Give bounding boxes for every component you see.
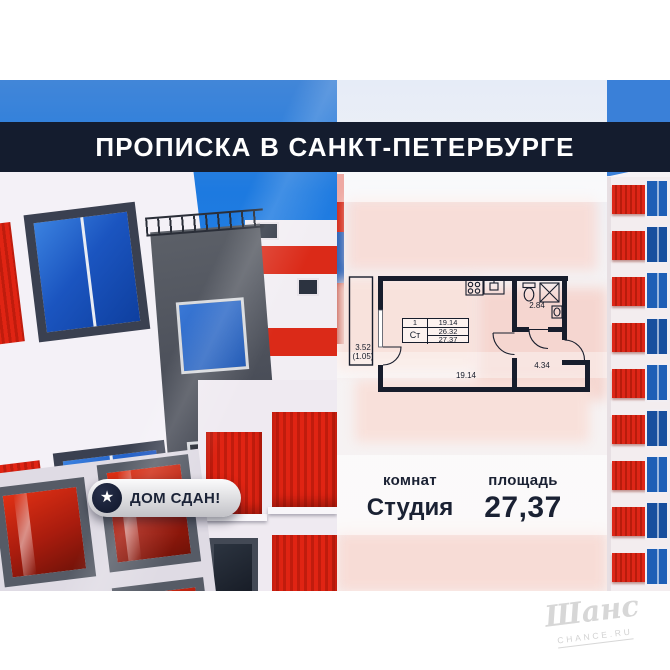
building-floor — [611, 452, 670, 498]
red-balcony — [612, 415, 646, 444]
star-icon — [100, 489, 114, 507]
watermark: Шанс CHANCE.RU — [531, 589, 656, 651]
window — [24, 202, 151, 343]
toilet-icon — [523, 283, 535, 301]
red-balcony — [272, 535, 337, 591]
watermark-brand: Шанс — [531, 589, 654, 633]
red-balcony — [272, 412, 337, 507]
window — [645, 317, 669, 356]
badge-circle — [92, 483, 122, 513]
building-floor — [611, 498, 670, 544]
ad-page: ДОМ СДАН! — [0, 0, 670, 670]
red-balcony — [612, 323, 646, 352]
faded-facade — [347, 198, 597, 270]
closeup-facade — [0, 449, 223, 591]
page-title: ПРОПИСКА В САНКТ-ПЕТЕРБУРГЕ — [95, 132, 574, 163]
window — [645, 179, 669, 218]
faded-band — [337, 172, 607, 202]
area-value: 27,37 — [461, 491, 585, 525]
floor-plan: 1 Ст 19.14 26.32 27.37 2.84 4.34 19.14 3… — [348, 272, 598, 397]
spec-rooms: 1 — [403, 319, 428, 328]
summary-area: площадь 27,37 — [461, 472, 585, 525]
right-building — [607, 176, 670, 591]
red-balcony — [612, 369, 646, 398]
window — [645, 501, 669, 540]
window — [297, 278, 319, 296]
badge-label: ДОМ СДАН! — [130, 490, 221, 507]
summary-rooms: комнат Студия — [347, 472, 473, 522]
window — [645, 225, 669, 264]
watermark-site: CHANCE.RU — [557, 626, 634, 648]
building-floor — [611, 544, 670, 590]
red-balcony — [612, 277, 646, 306]
spec-unit-type: Ст — [403, 328, 428, 344]
shower-icon — [540, 283, 559, 302]
area-label: площадь — [461, 472, 585, 489]
stove-icon — [466, 280, 483, 295]
faded-facade — [337, 532, 607, 591]
red-facade-panel — [0, 222, 25, 349]
window — [645, 363, 669, 402]
red-balcony — [612, 231, 646, 260]
house-delivered-badge: ДОМ СДАН! — [88, 479, 241, 517]
rooms-value: Студия — [347, 494, 473, 522]
balcony-area-label: 3.52 — [348, 343, 378, 352]
window — [176, 297, 249, 374]
building-floor — [611, 176, 670, 222]
red-balcony — [612, 507, 646, 536]
balcony-reduced-area-label: (1.05) — [348, 352, 378, 361]
window — [208, 538, 258, 591]
window-pane — [80, 217, 96, 327]
red-balcony — [612, 185, 646, 214]
hallway-area-label: 4.34 — [528, 361, 556, 370]
window — [112, 577, 211, 591]
title-banner: ПРОПИСКА В САНКТ-ПЕТЕРБУРГЕ — [0, 122, 670, 172]
spec-table: 1 Ст 19.14 26.32 27.37 — [402, 318, 469, 343]
window — [645, 455, 669, 494]
room-area-label: 19.14 — [450, 371, 482, 380]
red-balcony — [612, 461, 646, 490]
building-floor — [611, 268, 670, 314]
window — [645, 409, 669, 448]
spec-total-area: 27.37 — [428, 336, 468, 344]
red-balcony — [612, 553, 646, 582]
window — [0, 477, 96, 587]
rooms-label: комнат — [347, 472, 473, 489]
building-floor — [611, 314, 670, 360]
kitchen-sink-icon — [484, 280, 504, 294]
balcony-slab — [268, 507, 337, 514]
window — [645, 271, 669, 310]
building-floor — [611, 222, 670, 268]
bathroom-area-label: 2.84 — [524, 301, 550, 310]
bath-sink-icon — [552, 306, 562, 318]
building-floor — [611, 360, 670, 406]
window — [645, 547, 669, 586]
building-floor — [611, 406, 670, 452]
